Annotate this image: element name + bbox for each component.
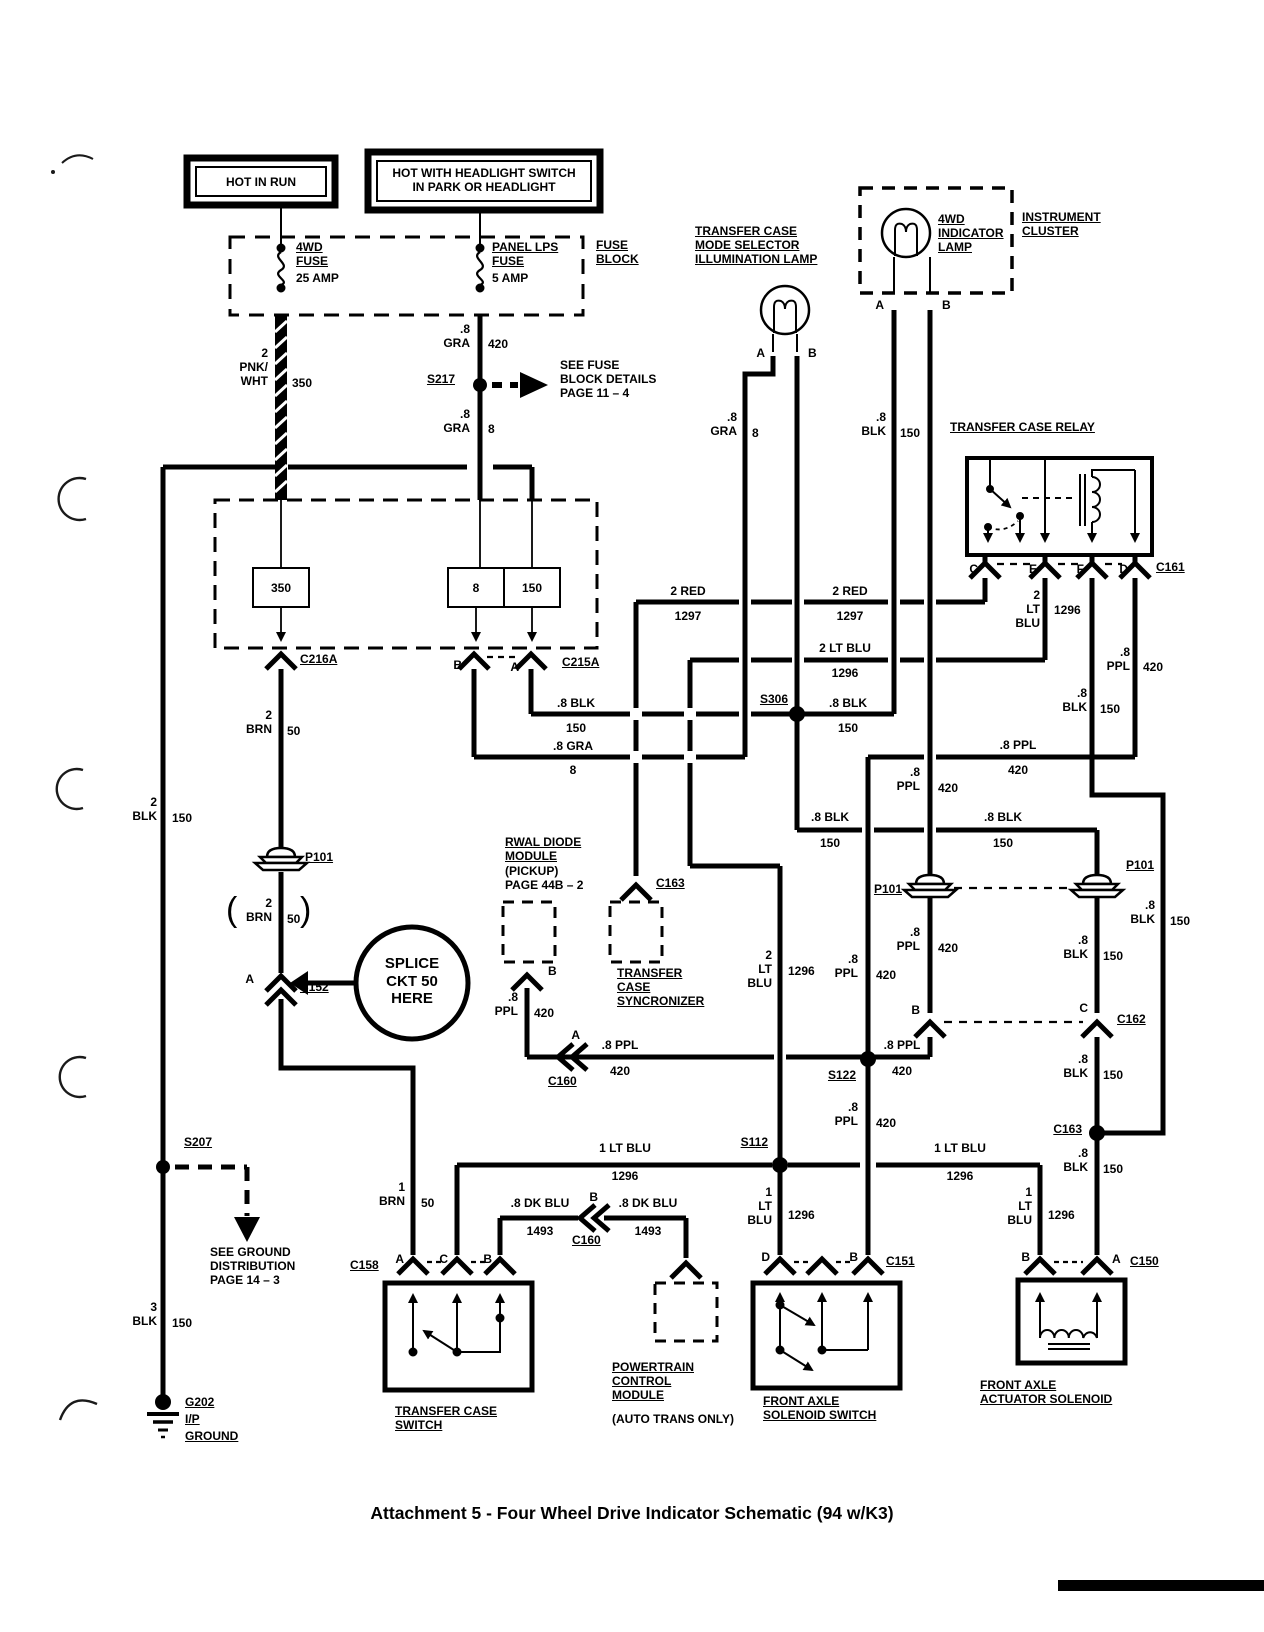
wire-label-8dkblu: .8 DK BLU xyxy=(511,1196,570,1210)
wire-gauge-blk: .8 BLK xyxy=(1063,1052,1088,1080)
ground-label-ground: GROUND xyxy=(185,1429,238,1443)
circuit-150: 150 xyxy=(566,721,586,735)
ground-symbol xyxy=(147,1414,179,1437)
pin-label-b: B xyxy=(808,346,817,360)
fuse-panel-name: PANEL LPS FUSE xyxy=(492,240,558,268)
wire-label-8blk: .8 BLK xyxy=(829,696,867,710)
wire-gauge-blk2: 2 BLK xyxy=(132,795,157,823)
circuit-1297: 1297 xyxy=(837,609,864,623)
component-title-relay: TRANSFER CASE RELAY xyxy=(950,420,1095,434)
circuit-1297: 1297 xyxy=(675,609,702,623)
wire-gauge-ppl: .8 PPL xyxy=(897,765,920,793)
pin-label-a: A xyxy=(395,1252,404,1266)
circuit-150: 150 xyxy=(993,836,1013,850)
component-title-4wd-lamp: 4WD INDICATOR LAMP xyxy=(938,212,1004,254)
wire-gauge-ppl: .8 PPL xyxy=(835,1100,858,1128)
wire-label-8gra: .8 GRA xyxy=(553,739,593,753)
circuit-150: 150 xyxy=(1170,914,1190,928)
pin-label-b: B xyxy=(1021,1250,1030,1264)
wire-label-8ppl: .8 PPL xyxy=(1000,738,1037,752)
wire-gauge-ppl: .8 PPL xyxy=(495,990,518,1018)
wire-gauge-ppl: .8 PPL xyxy=(835,952,858,980)
component-title-fa-switch: FRONT AXLE SOLENOID SWITCH xyxy=(763,1394,876,1422)
wire-gauge-blk: .8 BLK xyxy=(1063,1146,1088,1174)
circuit-350: 350 xyxy=(292,376,312,390)
wire-label-8dkblu: .8 DK BLU xyxy=(619,1196,678,1210)
circuit-420: 420 xyxy=(938,781,958,795)
splice-label-s306: S306 xyxy=(760,692,788,706)
circuit-150: 150 xyxy=(1103,1068,1123,1082)
wire-label-2ltblu: 2 LT BLU xyxy=(819,641,871,655)
pin-label-a: A xyxy=(756,346,765,360)
connector-label-c163: C163 xyxy=(1053,1122,1082,1136)
wire-gauge-blk: .8 BLK xyxy=(1062,686,1087,714)
circuit-420: 420 xyxy=(892,1064,912,1078)
fuse-block-title: FUSE BLOCK xyxy=(596,238,639,266)
resistor-150: 150 xyxy=(522,581,542,595)
wire-gauge-ppl: .8 PPL xyxy=(897,925,920,953)
wires-dashed xyxy=(175,385,1122,1262)
connector-label-c151: C151 xyxy=(886,1254,915,1268)
note-see-fuse-block: SEE FUSE BLOCK DETAILS PAGE 11 – 4 xyxy=(560,358,656,400)
circuit-1296: 1296 xyxy=(947,1169,974,1183)
pin-label-a: A xyxy=(510,660,519,674)
pin-label-a: A xyxy=(571,1028,580,1042)
connector-label-c163: C163 xyxy=(656,876,685,890)
component-title-cluster: INSTRUMENT CLUSTER xyxy=(1022,210,1101,238)
wire-gauge-blk: .8 BLK xyxy=(1063,933,1088,961)
component-title-sync: TRANSFER CASE SYNCRONIZER xyxy=(617,966,704,1008)
connector-label-c215a: C215A xyxy=(562,655,599,669)
wire-label-2red: 2 RED xyxy=(670,584,705,598)
circuit-150: 150 xyxy=(172,1316,192,1330)
circuit-8: 8 xyxy=(570,763,577,777)
ground-label-g202: G202 xyxy=(185,1395,214,1409)
circuit-1296: 1296 xyxy=(788,1208,815,1222)
circuit-150: 150 xyxy=(1103,949,1123,963)
wire-label-8blk: .8 BLK xyxy=(984,810,1022,824)
component-note-rwal: (PICKUP) PAGE 44B – 2 xyxy=(505,864,583,892)
fuse-panel-amp: 5 AMP xyxy=(492,271,528,285)
splice-label-s112: S112 xyxy=(741,1135,768,1149)
component-title-rwal: RWAL DIODE MODULE xyxy=(505,835,581,863)
wire-gauge-gra420: .8 GRA xyxy=(443,322,470,350)
circuit-50: 50 xyxy=(287,724,300,738)
wire-gauge-blk: .8 BLK xyxy=(1130,898,1155,926)
fuse-4wd-name: 4WD FUSE xyxy=(296,240,328,268)
fuse-4wd-amp: 25 AMP xyxy=(296,271,339,285)
wire-label-1ltblu: 1 LT BLU xyxy=(934,1141,986,1155)
wire-gauge-ppl: .8 PPL xyxy=(1107,645,1130,673)
pin-label-d: D xyxy=(1119,562,1128,576)
splice-label-s207: S207 xyxy=(184,1135,212,1149)
resistor-350: 350 xyxy=(271,581,291,595)
wire-label-8ppl: .8 PPL xyxy=(602,1038,639,1052)
circuit-50: 50 xyxy=(421,1196,434,1210)
circuit-1296: 1296 xyxy=(832,666,859,680)
circuit-1296: 1296 xyxy=(788,964,815,978)
resistor-box xyxy=(215,500,597,648)
pin-label-b: B xyxy=(548,964,557,978)
connector-label-c161: C161 xyxy=(1156,560,1185,574)
transfer-case-relay xyxy=(967,458,1152,555)
wire-gauge-brn1: 1 BRN xyxy=(379,1180,405,1208)
wire-label-1ltblu: 1 LT BLU xyxy=(599,1141,651,1155)
connector-label-c216a: C216A xyxy=(300,652,337,666)
schematic-page: HOT IN RUN HOT WITH HEADLIGHT SWITCH IN … xyxy=(0,0,1264,1632)
power-label-hot-headlight: HOT WITH HEADLIGHT SWITCH IN PARK OR HEA… xyxy=(392,166,575,194)
circuit-1493: 1493 xyxy=(635,1224,662,1238)
wire-gauge-ltblu2: 2 LT BLU xyxy=(1015,588,1040,630)
pin-label-a: A xyxy=(245,972,254,986)
wire-gauge-ltblu1: 1 LT BLU xyxy=(1007,1185,1032,1227)
circuit-420: 420 xyxy=(488,337,508,351)
resistor-8: 8 xyxy=(473,581,480,595)
connector-label-p101: P101 xyxy=(874,882,902,896)
circuit-420: 420 xyxy=(876,968,896,982)
circuit-150: 150 xyxy=(1100,702,1120,716)
component-note-pcm: (AUTO TRANS ONLY) xyxy=(612,1412,734,1426)
circuit-420: 420 xyxy=(1143,660,1163,674)
splice-label-s122: S122 xyxy=(828,1068,856,1082)
circuit-420: 420 xyxy=(938,941,958,955)
connector-label-p101: P101 xyxy=(1126,858,1154,872)
circuit-150: 150 xyxy=(838,721,858,735)
pin-label-b: B xyxy=(942,298,951,312)
pin-label-b: B xyxy=(911,1003,920,1017)
component-title-tc-switch: TRANSFER CASE SWITCH xyxy=(395,1404,497,1432)
front-axle-actuator-solenoid xyxy=(1018,1280,1125,1363)
page-caption: Attachment 5 - Four Wheel Drive Indicato… xyxy=(0,1503,1264,1524)
pin-label-a: A xyxy=(1112,1252,1121,1266)
pin-label-c: C xyxy=(1079,1001,1088,1015)
connector-label-c150: C150 xyxy=(1130,1254,1159,1268)
circuit-1493: 1493 xyxy=(527,1224,554,1238)
splice-label-s217: S217 xyxy=(427,372,455,386)
pin-label-a: A xyxy=(875,298,884,312)
connector-chevrons xyxy=(266,563,1150,1278)
connector-label-c158: C158 xyxy=(350,1258,379,1272)
connector-label-c162: C162 xyxy=(1117,1012,1146,1026)
circuit-420: 420 xyxy=(1008,763,1028,777)
pin-label-f: F xyxy=(1077,562,1084,576)
hatched-wire xyxy=(275,315,287,500)
circuit-150: 150 xyxy=(900,426,920,440)
wire-label-8blk: .8 BLK xyxy=(811,810,849,824)
circuit-8: 8 xyxy=(488,422,495,436)
wire-gauge-gra8: .8 GRA xyxy=(443,407,470,435)
pin-label-b: B xyxy=(483,1252,492,1266)
mode-selector-lamp xyxy=(761,286,809,352)
wire-gauge-pnkwht: 2 PNK/ WHT xyxy=(239,346,268,388)
circuit-1296: 1296 xyxy=(612,1169,639,1183)
wire-gauge-gra8: .8 GRA xyxy=(710,410,737,438)
circuit-420: 420 xyxy=(534,1006,554,1020)
connector-label-c160: C160 xyxy=(572,1233,601,1247)
wire-label-8ppl: .8 PPL xyxy=(884,1038,921,1052)
pin-label-b: B xyxy=(453,658,462,672)
pin-label-b: B xyxy=(589,1190,598,1204)
component-title-pcm: POWERTRAIN CONTROL MODULE xyxy=(612,1360,694,1402)
pin-label-e: E xyxy=(1029,562,1037,576)
ground-label-ip: I/P xyxy=(185,1412,200,1426)
circuit-150: 150 xyxy=(820,836,840,850)
circuit-1296: 1296 xyxy=(1054,603,1081,617)
pin-label-b: B xyxy=(849,1250,858,1264)
wire-gauge-ltblu1: 1 LT BLU xyxy=(747,1185,772,1227)
circuit-420: 420 xyxy=(876,1116,896,1130)
connector-label-c152: C152 xyxy=(300,980,329,994)
wire-gauge-ltblu2: 2 LT BLU xyxy=(747,948,772,990)
power-label-hot-in-run: HOT IN RUN xyxy=(226,175,296,189)
wire-label-2red: 2 RED xyxy=(832,584,867,598)
wire-gauge-brn: 2 BRN xyxy=(246,708,272,736)
component-title-fa-solenoid: FRONT AXLE ACTUATOR SOLENOID xyxy=(980,1378,1112,1406)
pin-label-c: C xyxy=(969,562,978,576)
wire-gauge-brn: 2 BRN xyxy=(246,896,272,924)
front-axle-solenoid-switch xyxy=(753,1283,900,1388)
wire-gauge-blk: .8 BLK xyxy=(861,410,886,438)
note-see-ground: SEE GROUND DISTRIBUTION PAGE 14 – 3 xyxy=(210,1245,295,1287)
circuit-50: 50 xyxy=(287,912,300,926)
wire-gauge-blk3: 3 BLK xyxy=(132,1300,157,1328)
paren-right: ) xyxy=(300,890,311,930)
circuit-150: 150 xyxy=(172,811,192,825)
component-title-mode-lamp: TRANSFER CASE MODE SELECTOR ILLUMINATION… xyxy=(695,224,817,266)
paren-left: ( xyxy=(226,890,237,930)
transfer-case-switch xyxy=(385,1283,532,1390)
connector-label-c160: C160 xyxy=(548,1074,577,1088)
connector-label-p101: P101 xyxy=(305,850,333,864)
pin-label-d: D xyxy=(761,1250,770,1264)
circuit-8: 8 xyxy=(752,426,759,440)
pin-label-c: C xyxy=(439,1252,448,1266)
circuit-150: 150 xyxy=(1103,1162,1123,1176)
note-splice-ckt50: SPLICE CKT 50 HERE xyxy=(385,955,439,1008)
wire-label-8blk: .8 BLK xyxy=(557,696,595,710)
circuit-1296: 1296 xyxy=(1048,1208,1075,1222)
circuit-420: 420 xyxy=(610,1064,630,1078)
